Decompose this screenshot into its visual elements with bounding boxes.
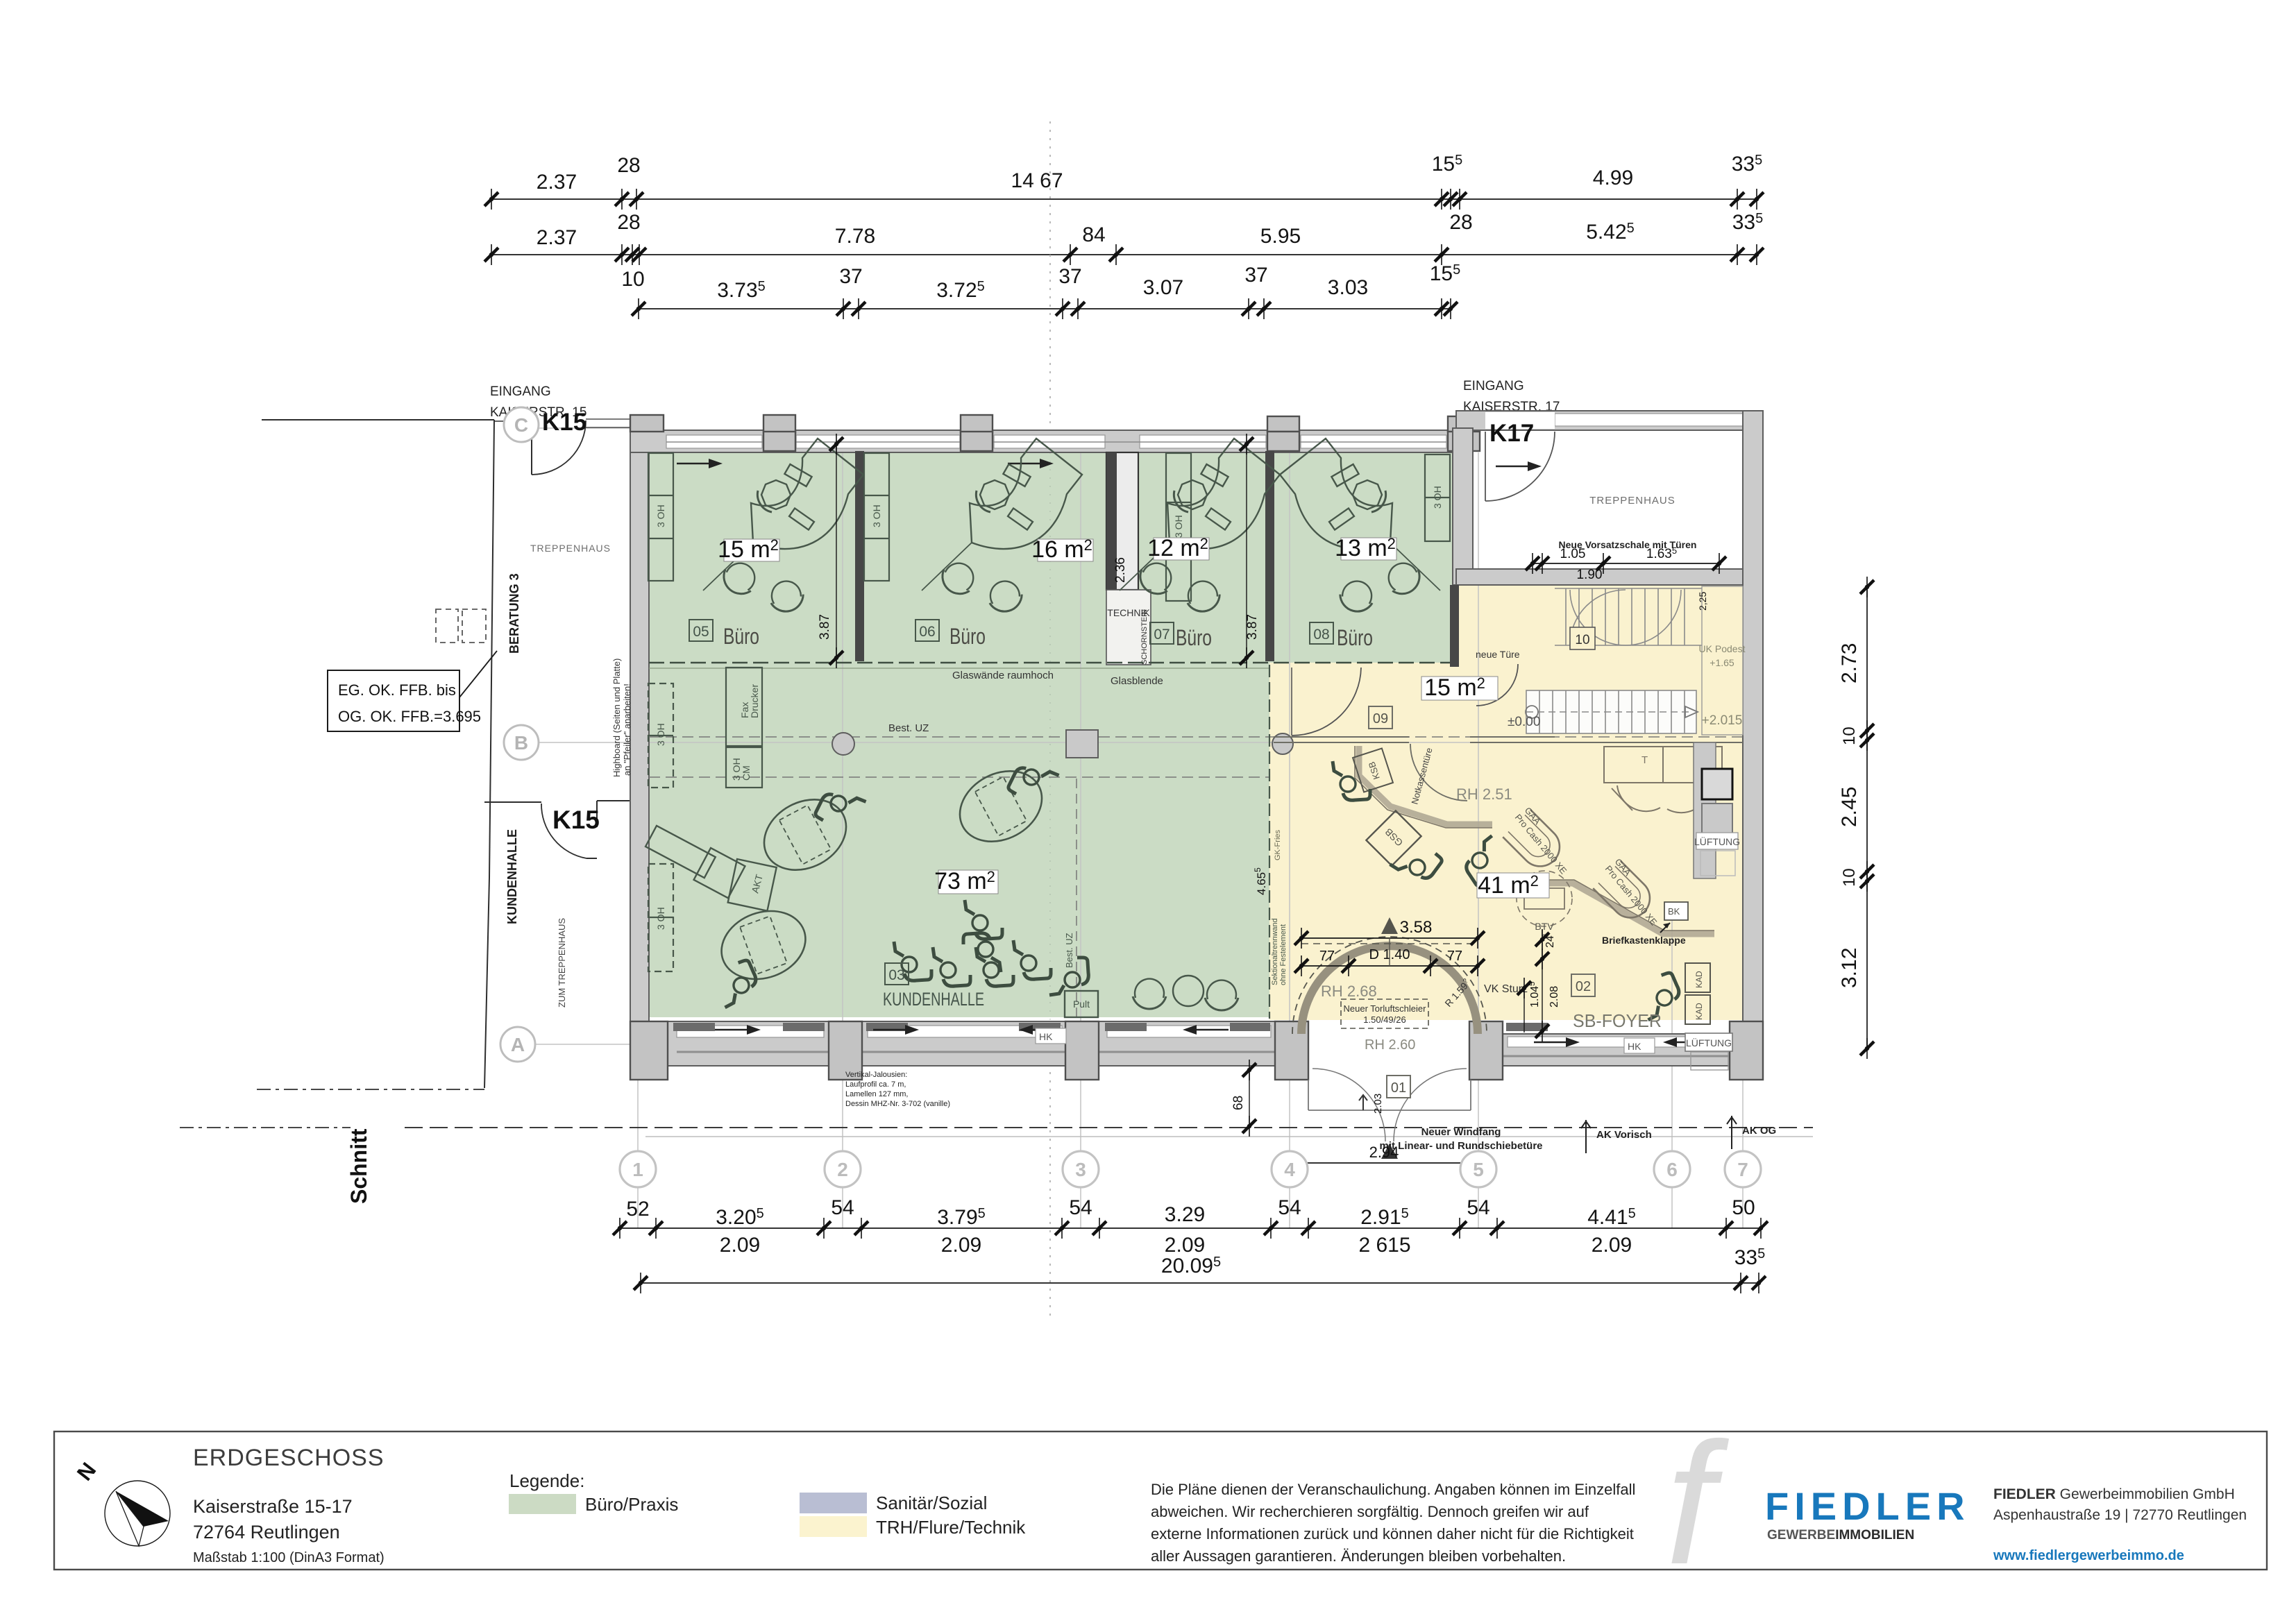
svg-text:Aspenhaustraße 19 | 72770 Reut: Aspenhaustraße 19 | 72770 Reutlingen	[1993, 1507, 2247, 1523]
svg-text:LÜFTUNG: LÜFTUNG	[1694, 835, 1740, 847]
svg-text:Briefkastenklappe: Briefkastenklappe	[1602, 935, 1686, 946]
svg-text:28: 28	[617, 211, 640, 234]
svg-text:Drucker: Drucker	[749, 684, 760, 718]
svg-text:TRH/Flure/Technik: TRH/Flure/Technik	[876, 1517, 1026, 1538]
svg-text:3 OH: 3 OH	[871, 504, 882, 527]
svg-text:72764 Reutlingen: 72764 Reutlingen	[193, 1522, 340, 1543]
svg-text:BTV: BTV	[1535, 921, 1554, 932]
svg-text:2 615: 2 615	[1358, 1234, 1410, 1257]
svg-text:10: 10	[621, 268, 644, 291]
svg-text:RH 2.60: RH 2.60	[1365, 1037, 1415, 1053]
svg-text:09: 09	[1373, 711, 1388, 726]
svg-text:C: C	[514, 414, 528, 436]
svg-text:3 OH: 3 OH	[655, 723, 666, 746]
svg-text:K15: K15	[552, 806, 600, 834]
svg-text:16 m2: 16 m2	[1031, 536, 1092, 563]
svg-text:3.07: 3.07	[1143, 276, 1183, 299]
svg-text:68: 68	[1231, 1096, 1246, 1110]
svg-text:05: 05	[693, 624, 709, 640]
svg-text:2,25: 2,25	[1697, 592, 1708, 611]
svg-text:Dessin MHZ-Nr. 3-702 (vanille): Dessin MHZ-Nr. 3-702 (vanille)	[845, 1100, 950, 1108]
svg-text:A: A	[511, 1034, 525, 1055]
svg-text:2.73: 2.73	[1838, 643, 1861, 683]
svg-text:T: T	[1641, 754, 1648, 766]
svg-text:aller Aussagen garantieren. Än: aller Aussagen garantieren. Änderungen b…	[1151, 1547, 1566, 1565]
svg-text:+1.65: +1.65	[1710, 657, 1734, 668]
svg-text:77: 77	[1447, 949, 1462, 964]
svg-text:+2.015: +2.015	[1702, 713, 1743, 728]
svg-text:28: 28	[617, 154, 640, 177]
svg-text:2.09: 2.09	[1165, 1234, 1205, 1257]
svg-text:77: 77	[1319, 949, 1335, 964]
svg-text:Laufprofil ca. 7 m,: Laufprofil ca. 7 m,	[845, 1080, 906, 1089]
svg-text:37: 37	[1244, 264, 1267, 287]
svg-text:Büro: Büro	[949, 624, 986, 649]
svg-text:14 67: 14 67	[1011, 169, 1063, 192]
svg-text:06: 06	[919, 624, 935, 640]
svg-text:RH 2.51: RH 2.51	[1456, 785, 1512, 803]
svg-text:01: 01	[1391, 1080, 1406, 1096]
svg-text:1.05: 1.05	[1560, 547, 1586, 561]
svg-text:2.09: 2.09	[941, 1234, 981, 1257]
svg-text:Vertikal-Jalousien:: Vertikal-Jalousien:	[845, 1071, 907, 1079]
svg-text:±0.00: ±0.00	[1508, 715, 1540, 729]
svg-text:GEWERBEIMMOBILIEN: GEWERBEIMMOBILIEN	[1767, 1528, 1914, 1543]
svg-text:3 OH: 3 OH	[655, 907, 666, 930]
svg-text:3 OH: 3 OH	[1432, 486, 1443, 509]
svg-text:EINGANG: EINGANG	[1463, 379, 1524, 393]
svg-text:BK: BK	[1668, 906, 1680, 917]
svg-text:OG. OK. FFB.=3.695: OG. OK. FFB.=3.695	[338, 708, 481, 725]
svg-text:GK-Fries: GK-Fries	[1274, 830, 1282, 861]
svg-text:28: 28	[1449, 211, 1472, 234]
svg-text:3.87: 3.87	[818, 614, 832, 640]
svg-text:7: 7	[1737, 1159, 1748, 1180]
svg-text:10: 10	[1840, 868, 1859, 887]
svg-text:3.29: 3.29	[1165, 1203, 1205, 1226]
svg-text:RH 2.68: RH 2.68	[1321, 983, 1377, 1000]
svg-text:2: 2	[837, 1159, 848, 1180]
svg-text:50: 50	[1732, 1196, 1755, 1219]
svg-text:Neuer Torluftschleier: Neuer Torluftschleier	[1344, 1003, 1427, 1014]
svg-text:CM: CM	[741, 765, 752, 781]
svg-text:54: 54	[831, 1196, 854, 1219]
svg-text:Büro: Büro	[723, 624, 759, 649]
svg-text:2.08: 2.08	[1548, 986, 1560, 1008]
svg-text:TREPPENHAUS: TREPPENHAUS	[1589, 495, 1675, 507]
svg-text:20.095: 20.095	[1161, 1255, 1221, 1277]
svg-text:AK OG: AK OG	[1742, 1125, 1776, 1137]
svg-text:an "Pfeiler" anarbeiten!: an "Pfeiler" anarbeiten!	[622, 683, 632, 776]
svg-text:Glasblende: Glasblende	[1111, 675, 1163, 687]
svg-text:2.94: 2.94	[1369, 1144, 1399, 1161]
svg-text:12 m2: 12 m2	[1147, 535, 1208, 561]
svg-text:73 m2: 73 m2	[934, 868, 995, 894]
svg-text:37: 37	[839, 265, 862, 288]
svg-text:Highboard (Seiten und Platte): Highboard (Seiten und Platte)	[611, 658, 622, 777]
svg-text:Sanitär/Sozial: Sanitär/Sozial	[876, 1493, 987, 1513]
svg-text:3: 3	[1075, 1159, 1086, 1180]
svg-text:13 m2: 13 m2	[1335, 535, 1396, 561]
svg-text:Büro: Büro	[1176, 625, 1212, 650]
svg-text:FIEDLER: FIEDLER	[1765, 1484, 1970, 1528]
svg-text:BERATUNG 3: BERATUNG 3	[507, 573, 521, 654]
svg-text:Best. UZ: Best. UZ	[1064, 933, 1074, 968]
svg-text:ohne Festelement: ohne Festelement	[1279, 924, 1288, 985]
svg-text:mit Linear- und Rundschiebetür: mit Linear- und Rundschiebetüre	[1379, 1140, 1542, 1152]
svg-text:02: 02	[1576, 979, 1591, 994]
svg-text:2.45: 2.45	[1838, 787, 1861, 827]
svg-text:Sektionaltrennwand: Sektionaltrennwand	[1271, 918, 1279, 985]
svg-text:84: 84	[1082, 223, 1105, 246]
svg-text:Neuer Windfang: Neuer Windfang	[1421, 1126, 1501, 1138]
svg-text:4.99: 4.99	[1593, 167, 1633, 189]
svg-text:Legende:: Legende:	[509, 1470, 584, 1491]
svg-text:2.09: 2.09	[1592, 1234, 1632, 1257]
svg-text:2.37: 2.37	[537, 171, 577, 194]
svg-text:Maßstab 1:100 (DinA3 Format): Maßstab 1:100 (DinA3 Format)	[193, 1550, 385, 1565]
svg-text:K17: K17	[1489, 420, 1534, 447]
svg-text:15 m2: 15 m2	[718, 536, 779, 563]
svg-text:SCHORNSTEIN: SCHORNSTEIN	[1140, 609, 1149, 665]
svg-text:2.03: 2.03	[1372, 1094, 1384, 1114]
svg-text:LÜFTUNG: LÜFTUNG	[1686, 1037, 1732, 1048]
svg-text:neue Türe: neue Türe	[1476, 649, 1520, 660]
svg-text:ERDGESCHOSS: ERDGESCHOSS	[193, 1445, 385, 1471]
svg-text:6: 6	[1666, 1159, 1678, 1180]
svg-text:1.90: 1.90	[1577, 568, 1603, 582]
svg-text:Best. UZ: Best. UZ	[888, 722, 929, 734]
svg-text:5.95: 5.95	[1260, 225, 1301, 248]
svg-text:07: 07	[1154, 627, 1170, 643]
svg-text:Pult: Pult	[1073, 999, 1090, 1010]
svg-text:03: 03	[888, 967, 904, 983]
svg-text:3.87: 3.87	[1245, 614, 1260, 640]
svg-text:1: 1	[632, 1159, 643, 1180]
svg-text:15 m2: 15 m2	[1424, 674, 1485, 701]
svg-text:K15: K15	[542, 409, 586, 436]
svg-text:3.58: 3.58	[1400, 918, 1433, 937]
svg-text:SB-FOYER: SB-FOYER	[1573, 1010, 1662, 1031]
svg-text:1.50/49/26: 1.50/49/26	[1363, 1014, 1406, 1025]
svg-text:5: 5	[1473, 1159, 1484, 1180]
svg-text:EG. OK. FFB. bis: EG. OK. FFB. bis	[338, 681, 456, 699]
svg-text:54: 54	[1069, 1196, 1092, 1219]
svg-text:08: 08	[1313, 627, 1329, 643]
svg-text:KAD: KAD	[1694, 971, 1704, 988]
svg-text:KUNDENHALLE: KUNDENHALLE	[883, 989, 984, 1010]
svg-text:Schnitt: Schnitt	[346, 1128, 371, 1204]
svg-text:FIEDLER Gewerbeimmobilien GmbH: FIEDLER Gewerbeimmobilien GmbH	[1993, 1486, 2235, 1502]
svg-text:41 m2: 41 m2	[1478, 872, 1539, 899]
svg-text:Lamellen 127 mm,: Lamellen 127 mm,	[845, 1090, 909, 1098]
svg-text:externe Informationen zurück u: externe Informationen zurück und können …	[1151, 1525, 1634, 1543]
svg-text:HK: HK	[1628, 1041, 1641, 1052]
svg-text:2.09: 2.09	[720, 1234, 760, 1257]
svg-text:3.03: 3.03	[1328, 276, 1368, 299]
svg-text:3 OH: 3 OH	[655, 504, 666, 527]
svg-text:www.fiedlergewerbeimmo.de: www.fiedlergewerbeimmo.de	[1993, 1548, 2184, 1563]
svg-text:54: 54	[1278, 1196, 1301, 1219]
svg-text:Büro/Praxis: Büro/Praxis	[585, 1494, 678, 1515]
svg-text:52: 52	[626, 1198, 649, 1221]
svg-text:HK: HK	[1039, 1031, 1053, 1042]
svg-text:Die Pläne dienen der Veranscha: Die Pläne dienen der Veranschaulichung. …	[1151, 1481, 1635, 1498]
svg-text:2.37: 2.37	[537, 226, 577, 249]
svg-text:TREPPENHAUS: TREPPENHAUS	[530, 543, 611, 554]
svg-text:54: 54	[1467, 1196, 1489, 1219]
svg-text:10: 10	[1840, 726, 1859, 745]
svg-text:ZUM TREPPENHAUS: ZUM TREPPENHAUS	[557, 918, 567, 1008]
svg-text:3.12: 3.12	[1838, 948, 1861, 988]
svg-text:B: B	[514, 732, 528, 754]
svg-text:KUNDENHALLE: KUNDENHALLE	[505, 829, 519, 924]
svg-text:Kaiserstraße 15-17: Kaiserstraße 15-17	[193, 1496, 353, 1517]
svg-text:AK Vorisch: AK Vorisch	[1596, 1129, 1652, 1141]
svg-text:10: 10	[1575, 633, 1589, 647]
svg-text:Büro: Büro	[1337, 625, 1373, 650]
svg-text:2.36: 2.36	[1113, 557, 1128, 583]
svg-text:37: 37	[1058, 265, 1081, 288]
svg-text:7.78: 7.78	[835, 225, 875, 248]
svg-text:abweichen. Wir recherchieren s: abweichen. Wir recherchieren sorgfältig.…	[1151, 1503, 1589, 1520]
svg-text:Glaswände raumhoch: Glaswände raumhoch	[952, 670, 1054, 681]
svg-text:4: 4	[1284, 1159, 1295, 1180]
svg-text:EINGANG: EINGANG	[490, 384, 551, 399]
svg-text:UK Podest: UK Podest	[1699, 643, 1746, 654]
svg-text:KAD: KAD	[1694, 1003, 1704, 1020]
